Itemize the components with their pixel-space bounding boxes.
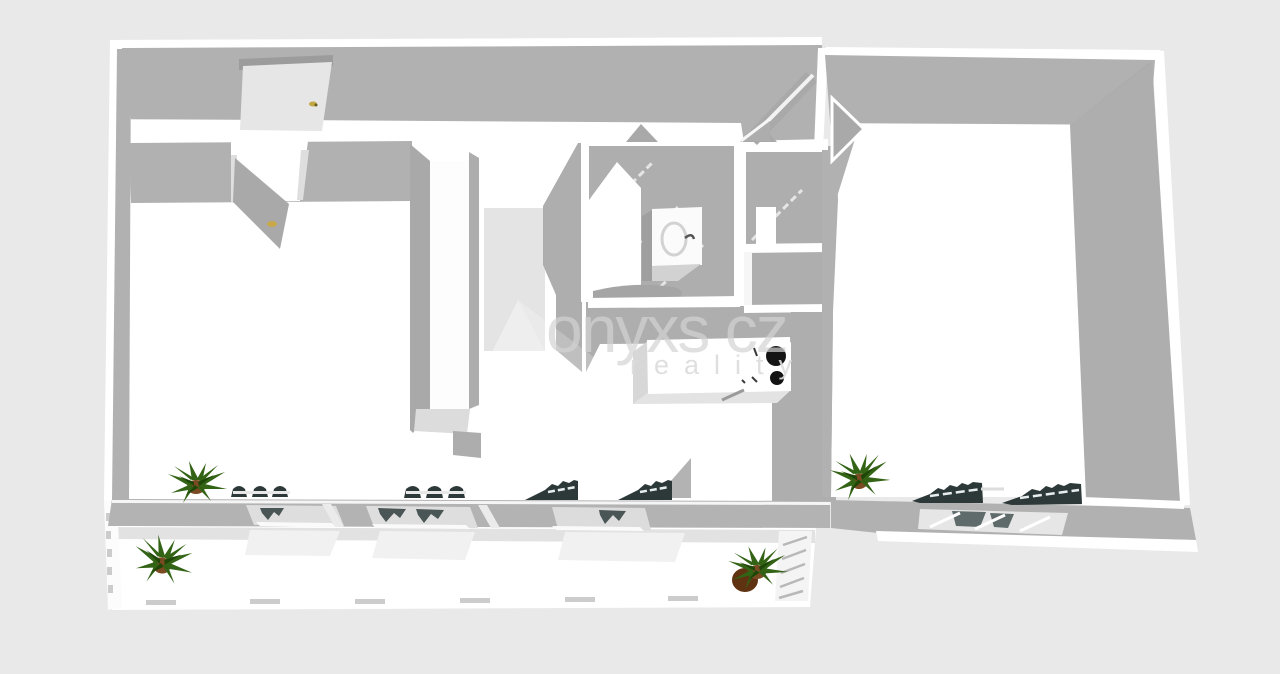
svg-text:reality: reality (630, 350, 807, 380)
